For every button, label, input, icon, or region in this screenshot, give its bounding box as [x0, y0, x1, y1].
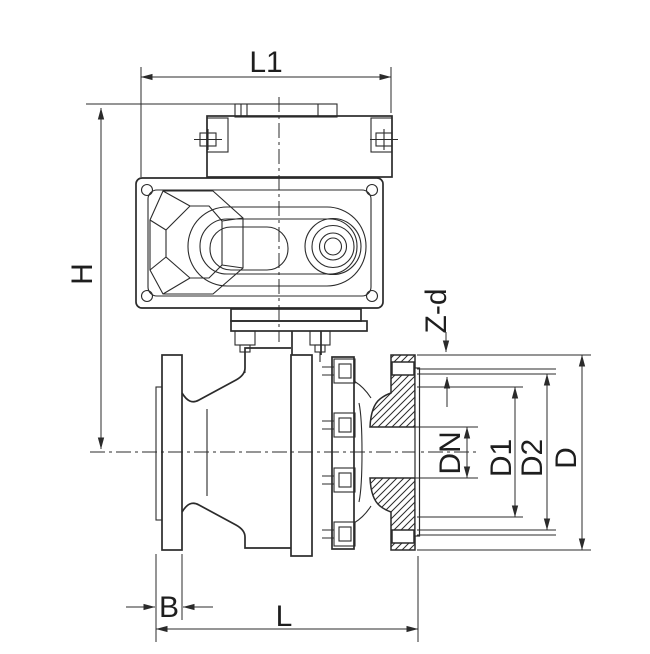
cap-neck-top-curve: [354, 381, 371, 398]
bracket-plate-upper: [231, 309, 361, 321]
corner-screw-icon: [367, 185, 378, 196]
actuator-cover-inner-edge: [148, 190, 371, 296]
body-profile-top: [182, 348, 291, 402]
inlet-flange-face-plate: [156, 387, 162, 520]
dim-label-B: B: [159, 591, 179, 624]
dim-label-D: D: [550, 447, 583, 469]
cap-joint-flange: [332, 357, 354, 549]
terminal-box: [207, 116, 392, 177]
body-joint-flange: [291, 355, 312, 556]
bracket-bolt-right: [310, 331, 330, 362]
valve-technical-drawing: L1 H Z-d DN D1 D2 D B L: [0, 0, 650, 654]
left-lug-screw-icon: [194, 129, 222, 150]
flange-section-upper: [370, 355, 415, 427]
cover-corner-screws: [142, 185, 378, 302]
corner-screw-icon: [142, 291, 153, 302]
dim-label-D1: D1: [485, 439, 518, 477]
bracket-plate-lower: [231, 321, 367, 331]
corner-screw-icon: [142, 185, 153, 196]
indicator-dome-icon: [305, 219, 361, 275]
terminal-box-cap: [235, 104, 337, 117]
cap-neck-bottom-curve: [354, 506, 371, 523]
dimension-annotations: L1 H Z-d DN D1 D2 D B L: [66, 46, 591, 642]
right-lug: [371, 118, 392, 152]
joint-bolt-icon: [322, 413, 355, 437]
dim-label-DN: DN: [434, 431, 467, 474]
dim-label-H: H: [66, 263, 99, 285]
flange-section-lower: [370, 478, 415, 550]
dim-label-D2: D2: [516, 439, 549, 477]
raised-face: [415, 368, 420, 536]
right-lug-screw-icon: [370, 129, 398, 150]
corner-screw-icon: [367, 291, 378, 302]
body-joint-bolts: [322, 357, 355, 549]
mounting-bracket: [231, 309, 367, 373]
joint-bolt-icon: [322, 522, 355, 546]
joint-bolt-icon: [322, 468, 355, 492]
body-profile-bottom: [182, 503, 291, 548]
left-lug: [207, 118, 228, 152]
electric-actuator: [136, 104, 398, 308]
dim-label-L: L: [276, 600, 293, 633]
valve-stem: [292, 331, 321, 355]
joint-bolt-icon: [322, 359, 355, 383]
dim-label-Zd: Z-d: [420, 289, 453, 334]
dim-label-L1: L1: [249, 46, 282, 79]
drawing-canvas: L1 H Z-d DN D1 D2 D B L: [0, 0, 650, 654]
